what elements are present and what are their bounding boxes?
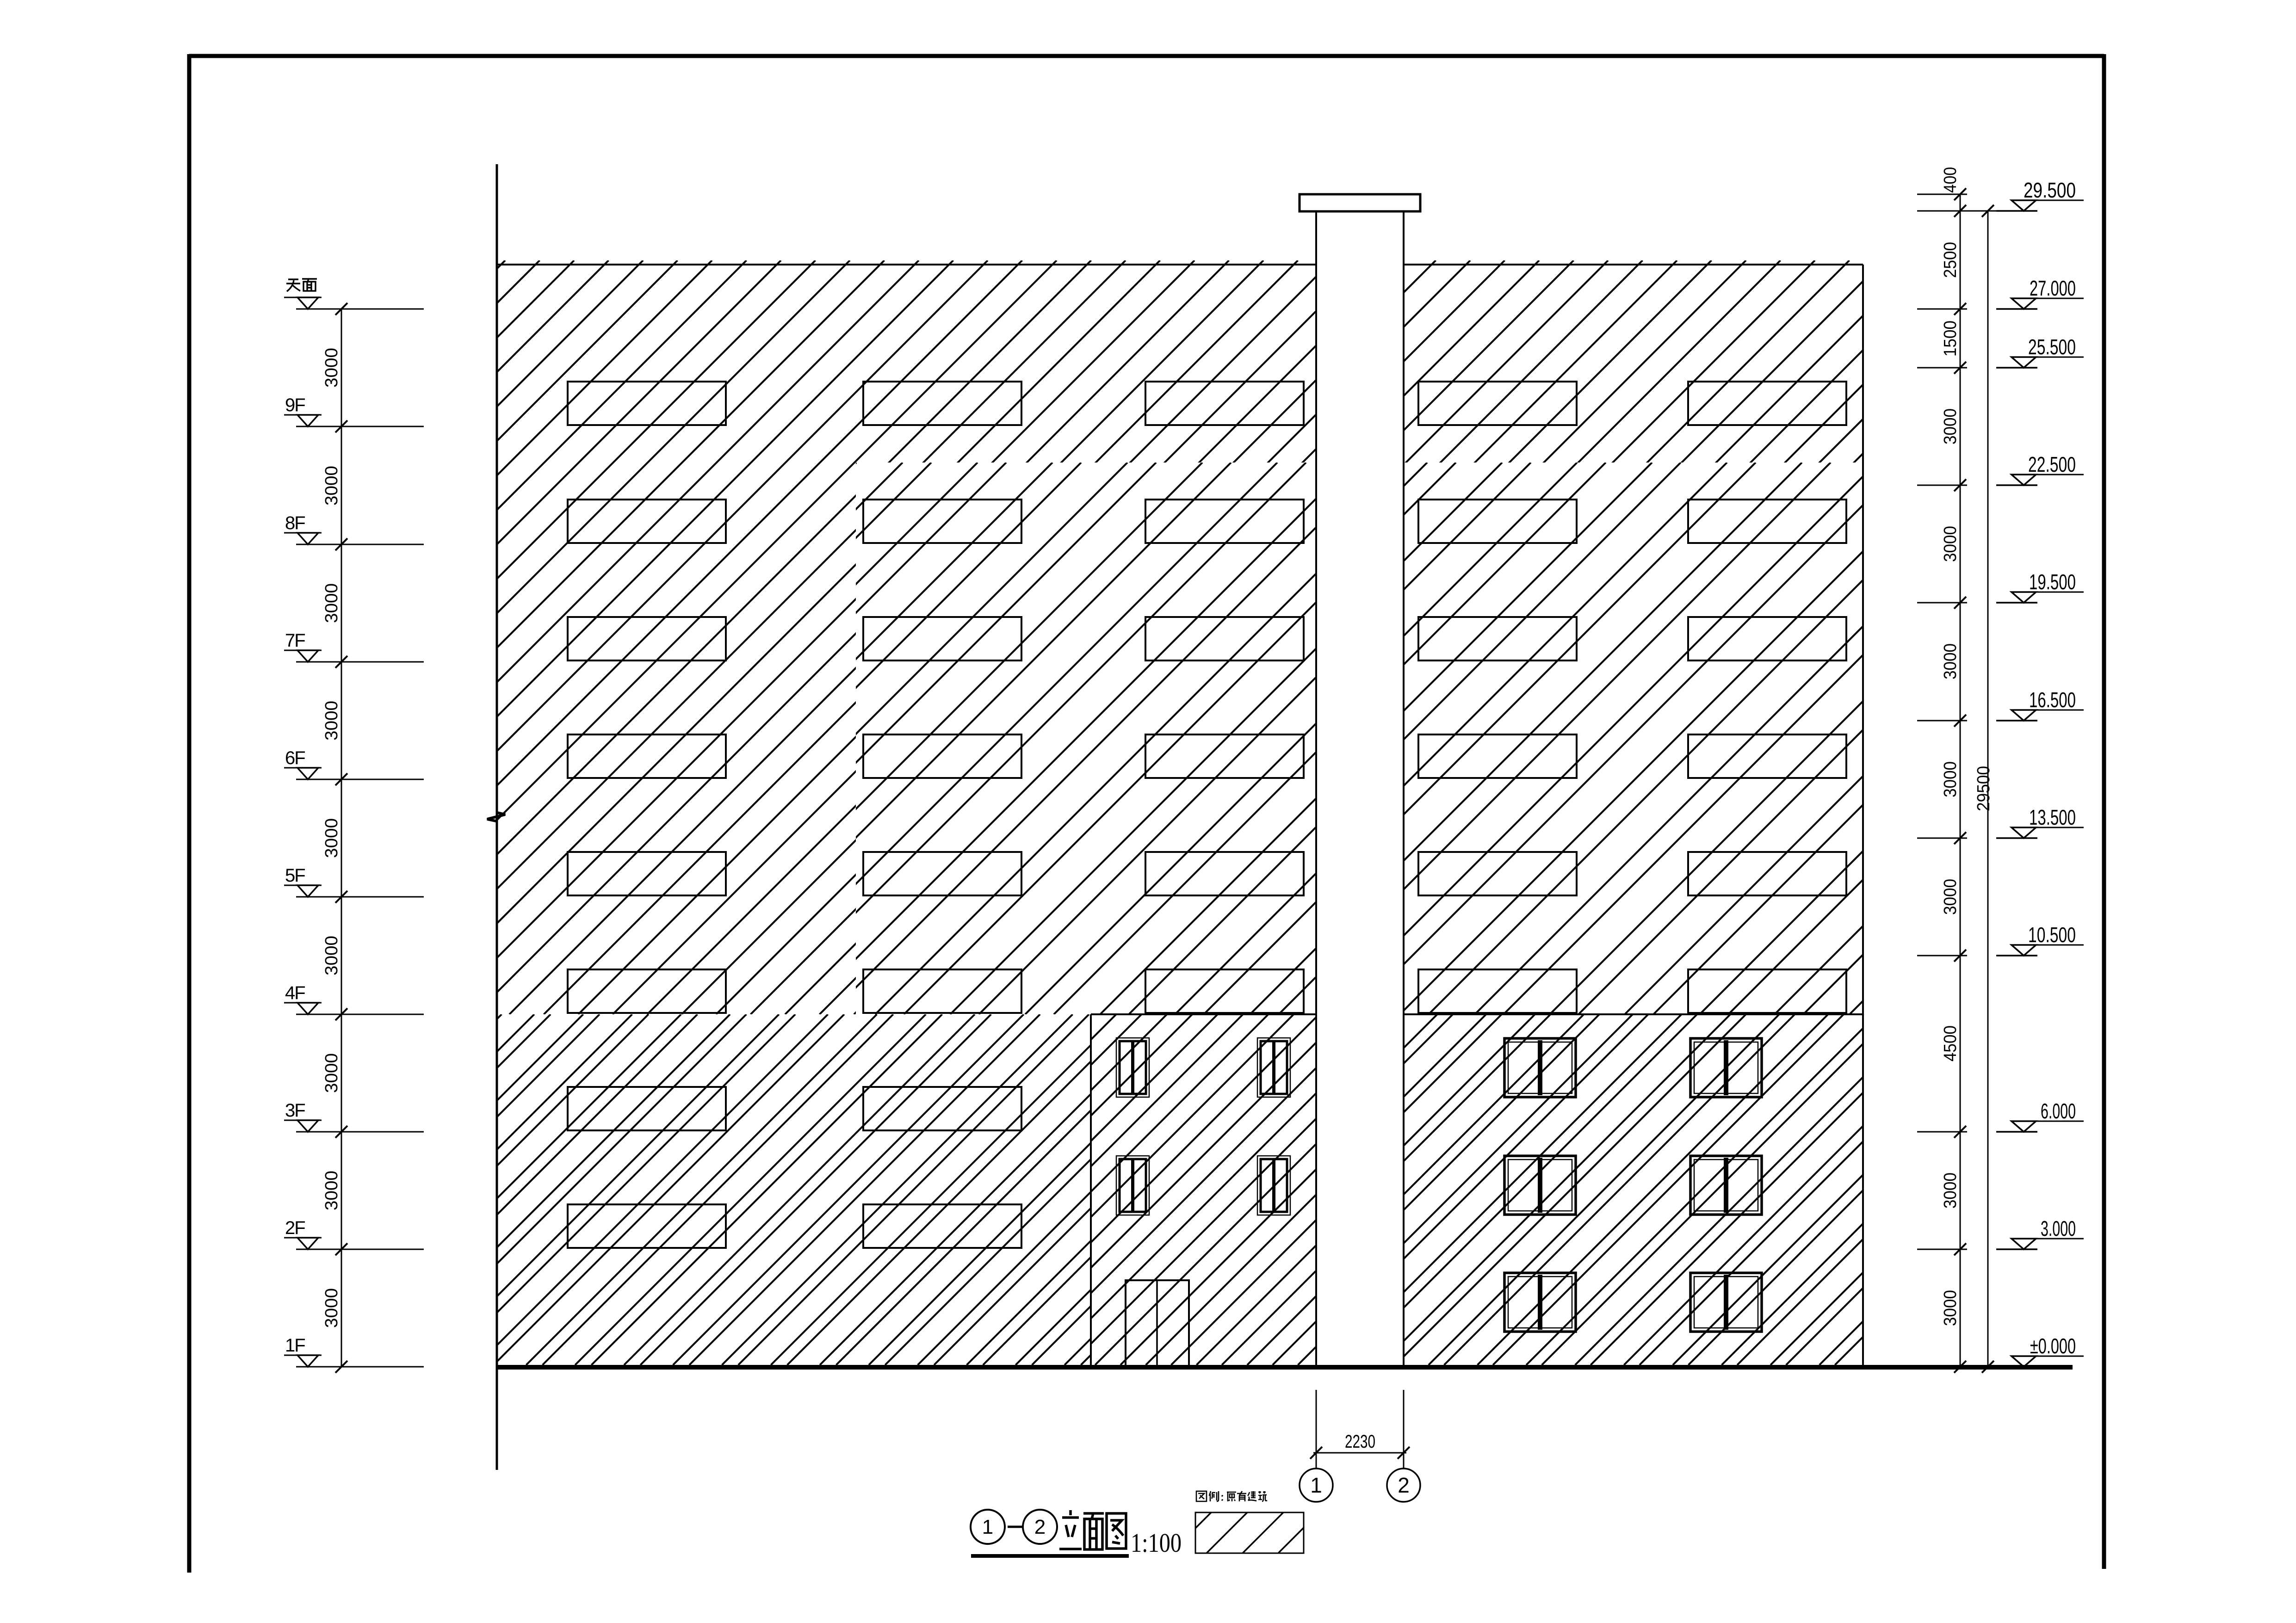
svg-text:29.500: 29.500 (2024, 178, 2076, 202)
svg-text:3000: 3000 (1941, 643, 1960, 679)
svg-text:4F: 4F (285, 983, 305, 1003)
svg-text:22.500: 22.500 (2028, 452, 2076, 476)
svg-text:2: 2 (1398, 1473, 1410, 1497)
svg-text:3000: 3000 (1941, 408, 1960, 444)
svg-text:16.500: 16.500 (2029, 688, 2076, 712)
svg-text:2230: 2230 (1345, 1432, 1375, 1452)
svg-text:9F: 9F (285, 395, 305, 415)
svg-text:3000: 3000 (322, 466, 341, 506)
svg-text:1F: 1F (285, 1335, 305, 1356)
svg-text:3000: 3000 (1941, 1290, 1960, 1326)
svg-text:8F: 8F (285, 513, 305, 533)
svg-text:3000: 3000 (1941, 761, 1960, 797)
svg-text:3000: 3000 (322, 583, 341, 623)
svg-text:3000: 3000 (322, 936, 341, 975)
svg-text:13.500: 13.500 (2029, 805, 2076, 829)
svg-text:1:100: 1:100 (1131, 1528, 1182, 1558)
svg-text:3000: 3000 (322, 701, 341, 741)
svg-text:3.000: 3.000 (2041, 1216, 2076, 1240)
svg-text:10.500: 10.500 (2028, 923, 2076, 947)
svg-text:3000: 3000 (322, 1053, 341, 1093)
svg-text:3000: 3000 (322, 818, 341, 858)
svg-text:6F: 6F (285, 748, 305, 768)
svg-text:400: 400 (1941, 167, 1960, 193)
svg-text:3000: 3000 (1941, 1173, 1960, 1209)
svg-text:1500: 1500 (1941, 321, 1960, 357)
svg-text:7F: 7F (285, 630, 305, 651)
svg-text:3F: 3F (285, 1100, 305, 1121)
svg-text:1: 1 (1310, 1473, 1322, 1497)
svg-text:3000: 3000 (322, 1171, 341, 1210)
svg-text:25.500: 25.500 (2028, 335, 2076, 359)
svg-text:±0.000: ±0.000 (2030, 1334, 2076, 1358)
svg-text:4500: 4500 (1941, 1025, 1960, 1061)
svg-text:3000: 3000 (322, 348, 341, 388)
svg-text:19.500: 19.500 (2029, 570, 2076, 594)
svg-text:3000: 3000 (1941, 526, 1960, 562)
svg-text:27.000: 27.000 (2030, 276, 2076, 300)
svg-text:2500: 2500 (1941, 242, 1960, 278)
svg-text:6.000: 6.000 (2041, 1099, 2076, 1123)
svg-text:1: 1 (982, 1516, 993, 1538)
svg-text:29500: 29500 (1974, 766, 1993, 811)
svg-text:3000: 3000 (1941, 879, 1960, 915)
svg-text:5F: 5F (285, 865, 305, 886)
svg-text:3000: 3000 (322, 1288, 341, 1328)
svg-text:2: 2 (1034, 1516, 1046, 1538)
svg-text:2F: 2F (285, 1218, 305, 1238)
